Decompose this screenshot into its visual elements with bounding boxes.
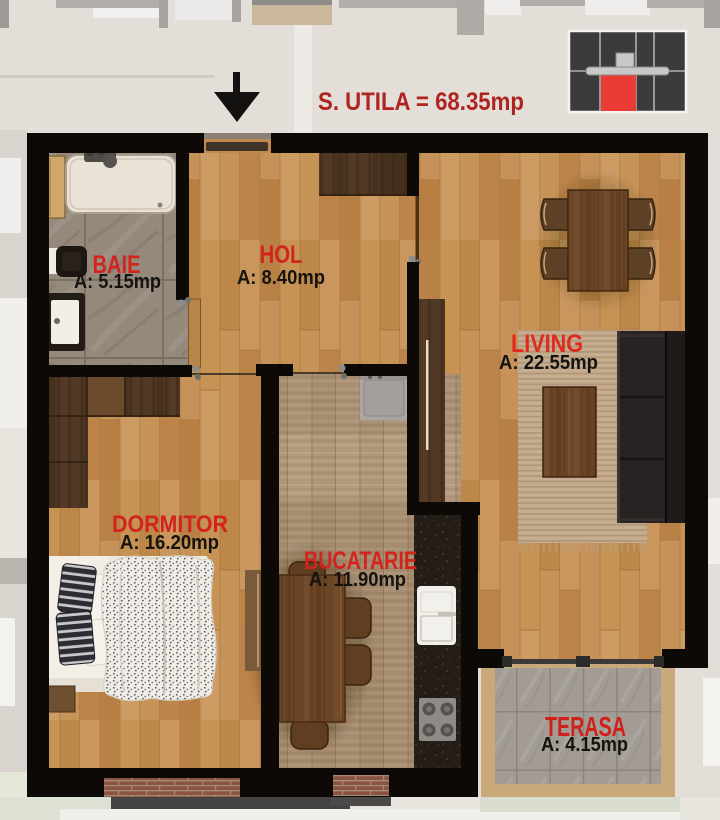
svg-text:A: 5.15mp: A: 5.15mp xyxy=(74,271,161,293)
svg-text:HOL: HOL xyxy=(260,241,303,269)
svg-text:A: 16.20mp: A: 16.20mp xyxy=(120,532,219,554)
svg-text:A: 11.90mp: A: 11.90mp xyxy=(309,569,406,591)
svg-text:A: 8.40mp: A: 8.40mp xyxy=(237,267,325,289)
svg-text:A: 4.15mp: A: 4.15mp xyxy=(541,734,628,756)
svg-text:A: 22.55mp: A: 22.55mp xyxy=(499,352,598,374)
svg-text:S. UTILA = 68.35mp: S. UTILA = 68.35mp xyxy=(318,88,524,116)
